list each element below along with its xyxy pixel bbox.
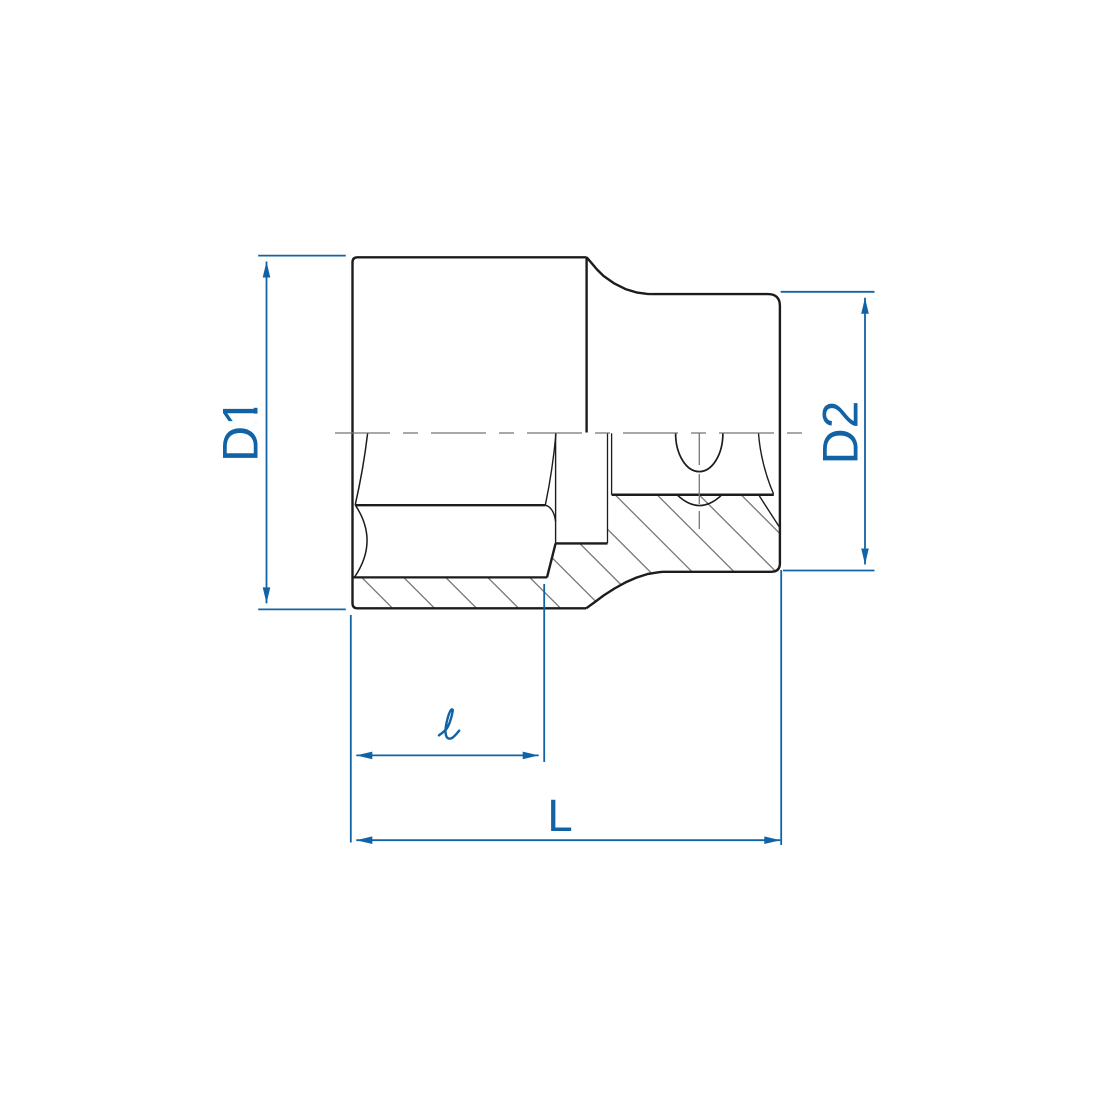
svg-text:D1: D1 [213,398,269,462]
svg-text:L: L [547,790,572,841]
svg-text:D2: D2 [813,401,869,465]
